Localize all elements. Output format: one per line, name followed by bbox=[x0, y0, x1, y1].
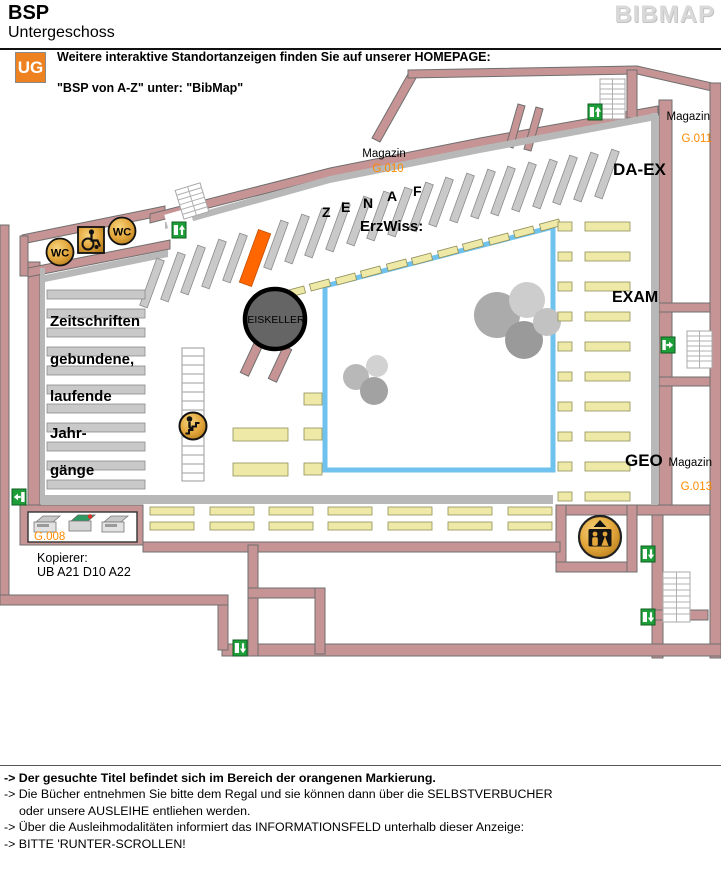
kopierer-caption1: Kopierer: bbox=[37, 551, 88, 565]
exit-icon bbox=[661, 337, 675, 353]
shelf-label: Jahr- bbox=[50, 425, 87, 442]
eiskeller-pillar: EISKELLER bbox=[240, 289, 305, 382]
wheelchair-icon bbox=[78, 227, 104, 253]
area-label-daex: DA-EX bbox=[613, 160, 667, 179]
shelf-label: laufende bbox=[50, 388, 112, 405]
exit-icon bbox=[588, 104, 602, 120]
shelf-label: gänge bbox=[50, 462, 94, 479]
footer-line: oder unsere AUSLEIHE entliehen werden. bbox=[4, 803, 716, 819]
footer-line: -> Die Bücher entnehmen Sie bitte dem Re… bbox=[4, 786, 716, 802]
exit-icon bbox=[641, 546, 655, 562]
exit-icon bbox=[641, 609, 655, 625]
svg-text:E: E bbox=[341, 199, 350, 215]
room-label-g011: Magazin bbox=[667, 111, 710, 123]
copier-room: G.008 bbox=[28, 512, 137, 543]
svg-text:WC: WC bbox=[51, 248, 69, 260]
stairs-down-icon bbox=[180, 413, 207, 440]
footer-line: -> BITTE 'RUNTER-SCROLLEN! bbox=[4, 836, 716, 852]
periodicals-labels: Zeitschriften gebundene, laufende Jahr- … bbox=[50, 313, 140, 479]
area-label-geo: GEO bbox=[625, 451, 663, 470]
wc-icon: WC bbox=[109, 218, 136, 245]
room-label-g010: Magazin bbox=[362, 148, 405, 160]
room-code-g010: G.010 bbox=[372, 163, 403, 175]
shelf-label: gebundene, bbox=[50, 351, 134, 368]
staircase-ne bbox=[600, 79, 625, 119]
room-code-g013: G.013 bbox=[681, 481, 712, 493]
area-label-erzwiss: ErzWiss: bbox=[360, 218, 423, 235]
area-label-exam: EXAM bbox=[612, 289, 658, 306]
eiskeller-label: EISKELLER bbox=[247, 314, 305, 326]
room-label-g013: Magazin bbox=[669, 457, 712, 469]
wc-icon: WC bbox=[47, 239, 74, 266]
svg-text:WC: WC bbox=[113, 227, 131, 239]
footer-line: -> Der gesuchte Titel befindet sich im B… bbox=[4, 770, 716, 786]
kopierer-caption2: UB A21 D10 A22 bbox=[37, 565, 131, 579]
room-code-g008: G.008 bbox=[34, 531, 65, 543]
room-code-g011: G.011 bbox=[682, 133, 712, 145]
svg-text:A: A bbox=[387, 188, 397, 204]
exit-icon bbox=[12, 489, 26, 505]
svg-text:F: F bbox=[413, 183, 422, 199]
staircase-east bbox=[687, 331, 712, 368]
exit-icon bbox=[233, 640, 247, 656]
footer-line: -> Über die Ausleihmodalitäten informier… bbox=[4, 819, 716, 835]
floor-map: EISKELLER bbox=[0, 0, 721, 871]
shelf-label: Zeitschriften bbox=[50, 313, 140, 330]
elevator-icon bbox=[579, 516, 621, 558]
exit-icon bbox=[172, 222, 186, 238]
footer-notes: -> Der gesuchte Titel befindet sich im B… bbox=[4, 770, 716, 852]
staircase-se bbox=[663, 572, 690, 622]
svg-text:Z: Z bbox=[322, 204, 331, 220]
svg-text:N: N bbox=[363, 195, 373, 211]
bibmap-page: BSP Untergeschoss BIBMAP UG Weitere inte… bbox=[0, 0, 721, 871]
footer-divider bbox=[0, 765, 721, 766]
